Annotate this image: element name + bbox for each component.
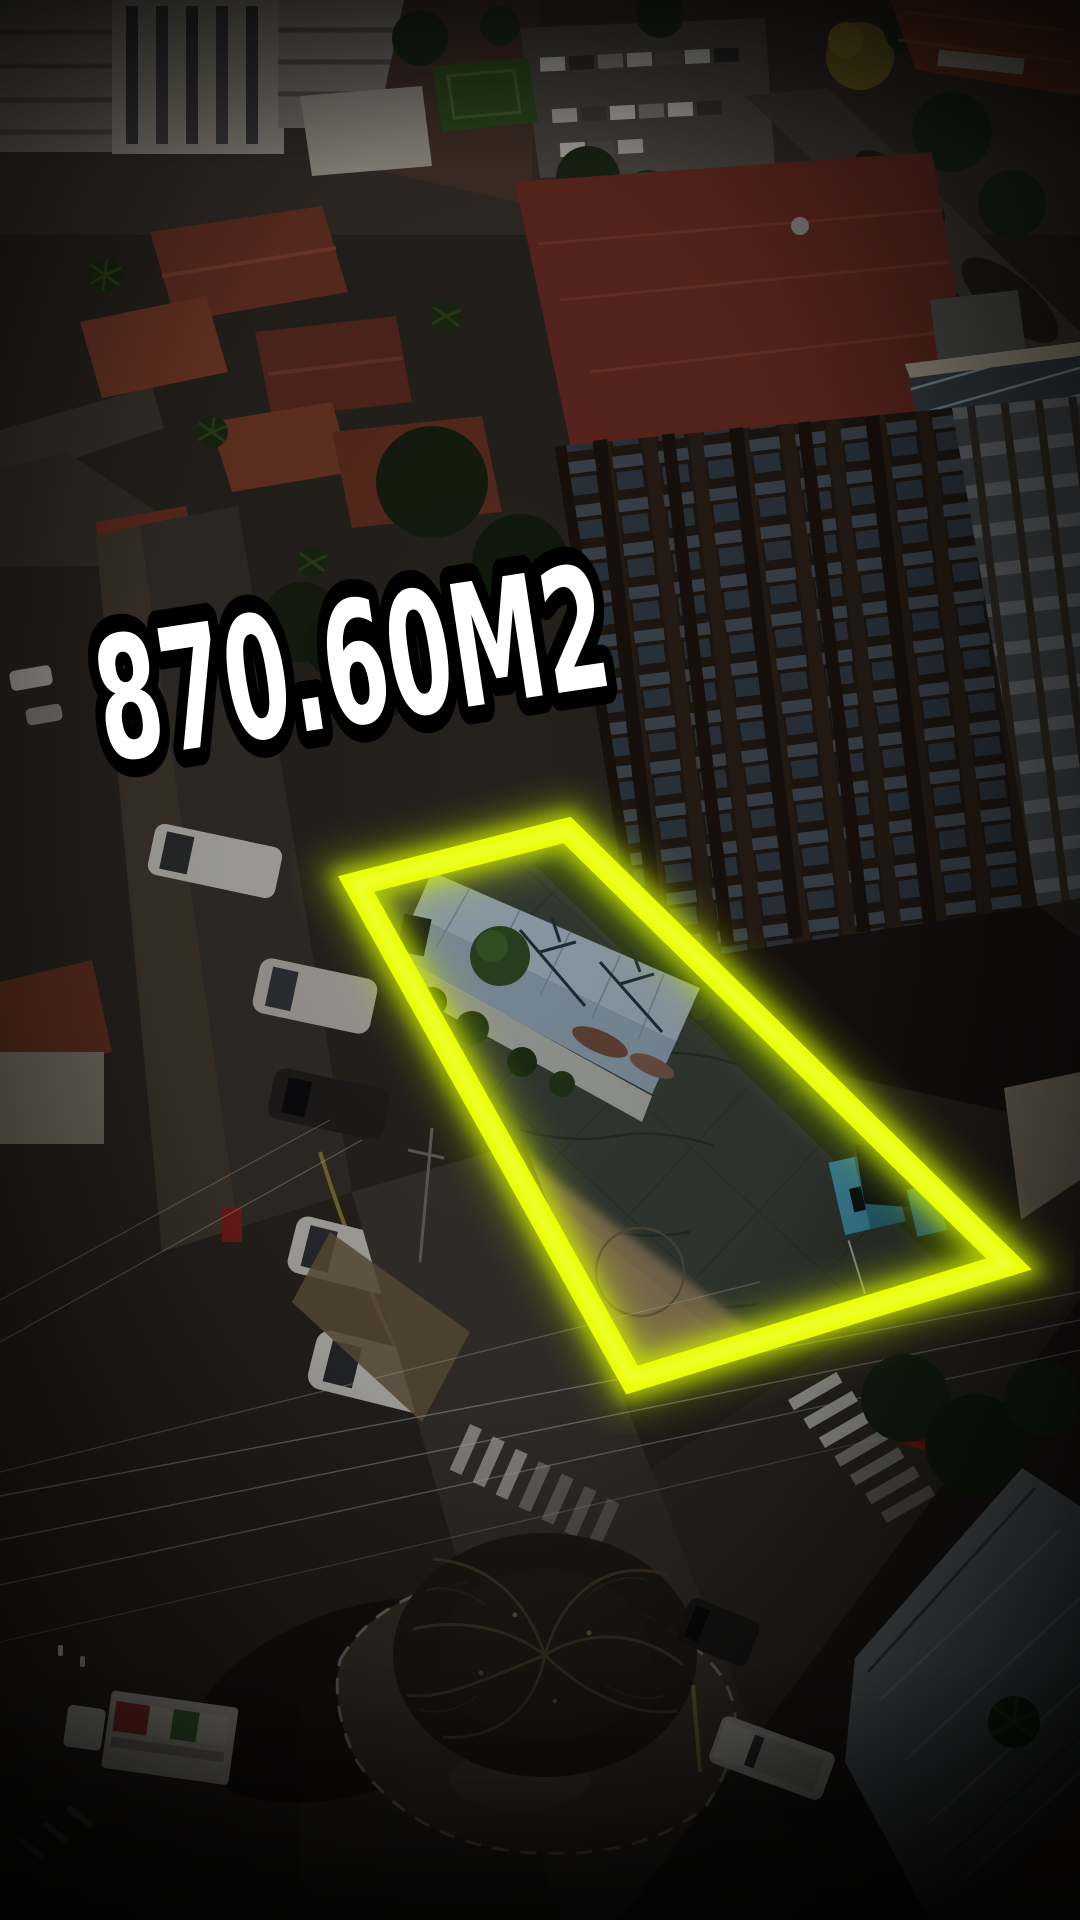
vignette-overlay <box>0 0 1080 1920</box>
reel-frame: 870.60M2 <box>0 0 1080 1920</box>
aerial-photo: 870.60M2 <box>0 0 1080 1920</box>
